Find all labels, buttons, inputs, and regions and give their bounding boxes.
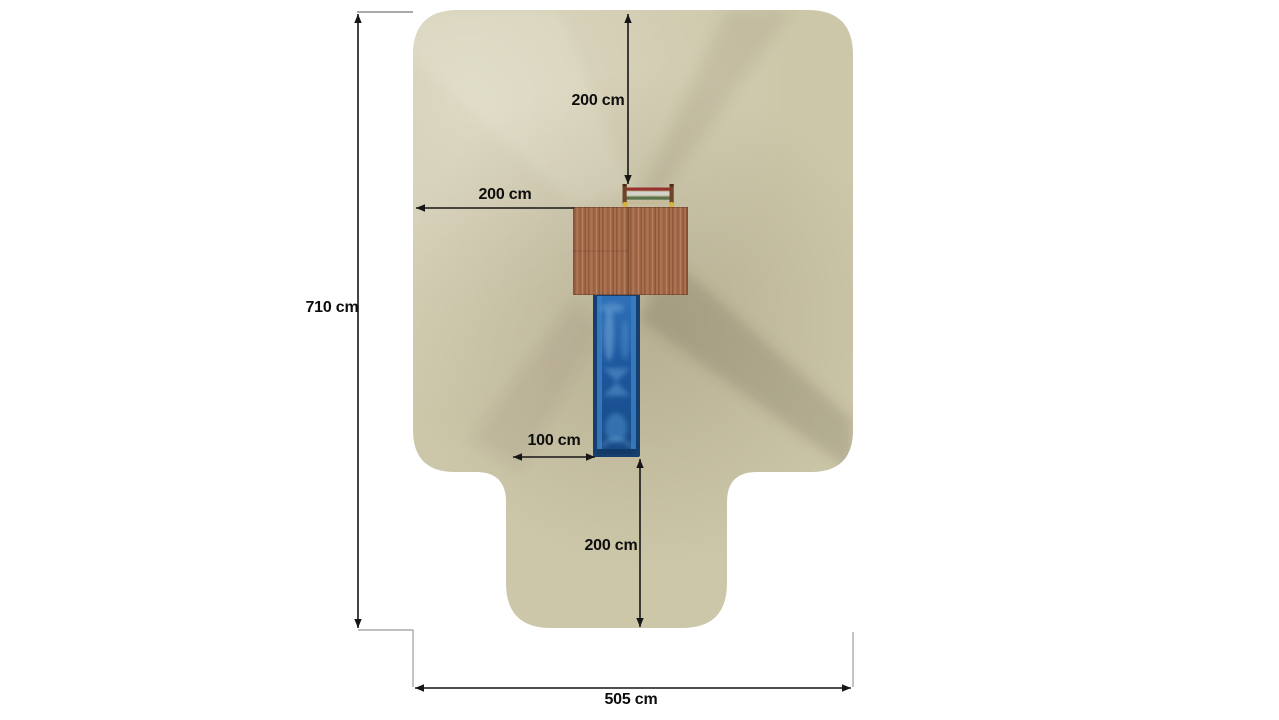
dimension-label-total-width: 505 cm bbox=[604, 691, 657, 709]
dimension-label-top-clearance: 200 cm bbox=[571, 92, 624, 110]
ladder-knob bbox=[669, 202, 674, 207]
dimension-label-total-depth: 710 cm bbox=[305, 299, 358, 317]
extension-line-bottom-left bbox=[358, 630, 413, 687]
ladder-rung-green bbox=[626, 197, 670, 200]
ladder-rung-beige bbox=[626, 201, 670, 204]
ladder-rail-cap bbox=[670, 184, 674, 187]
ladder-rail-cap bbox=[623, 184, 627, 187]
dimension-label-bottom-clearance: 200 cm bbox=[584, 537, 637, 555]
ladder-rung-red bbox=[626, 188, 670, 191]
slide-rail-right bbox=[631, 296, 636, 453]
slide bbox=[593, 293, 640, 457]
dimension-label-slide-clearance: 100 cm bbox=[527, 432, 580, 450]
slide-end-cap bbox=[597, 449, 636, 454]
plan-canvas: 200 cm 200 cm 710 cm 100 cm 200 cm 505 c… bbox=[0, 0, 1279, 720]
slide-rail-left bbox=[597, 296, 602, 453]
platform bbox=[573, 207, 688, 295]
dimension-label-left-clearance: 200 cm bbox=[478, 186, 531, 204]
ladder-knob bbox=[622, 202, 627, 207]
ladder-rung-light bbox=[626, 192, 670, 195]
plan-drawing bbox=[0, 0, 1279, 720]
